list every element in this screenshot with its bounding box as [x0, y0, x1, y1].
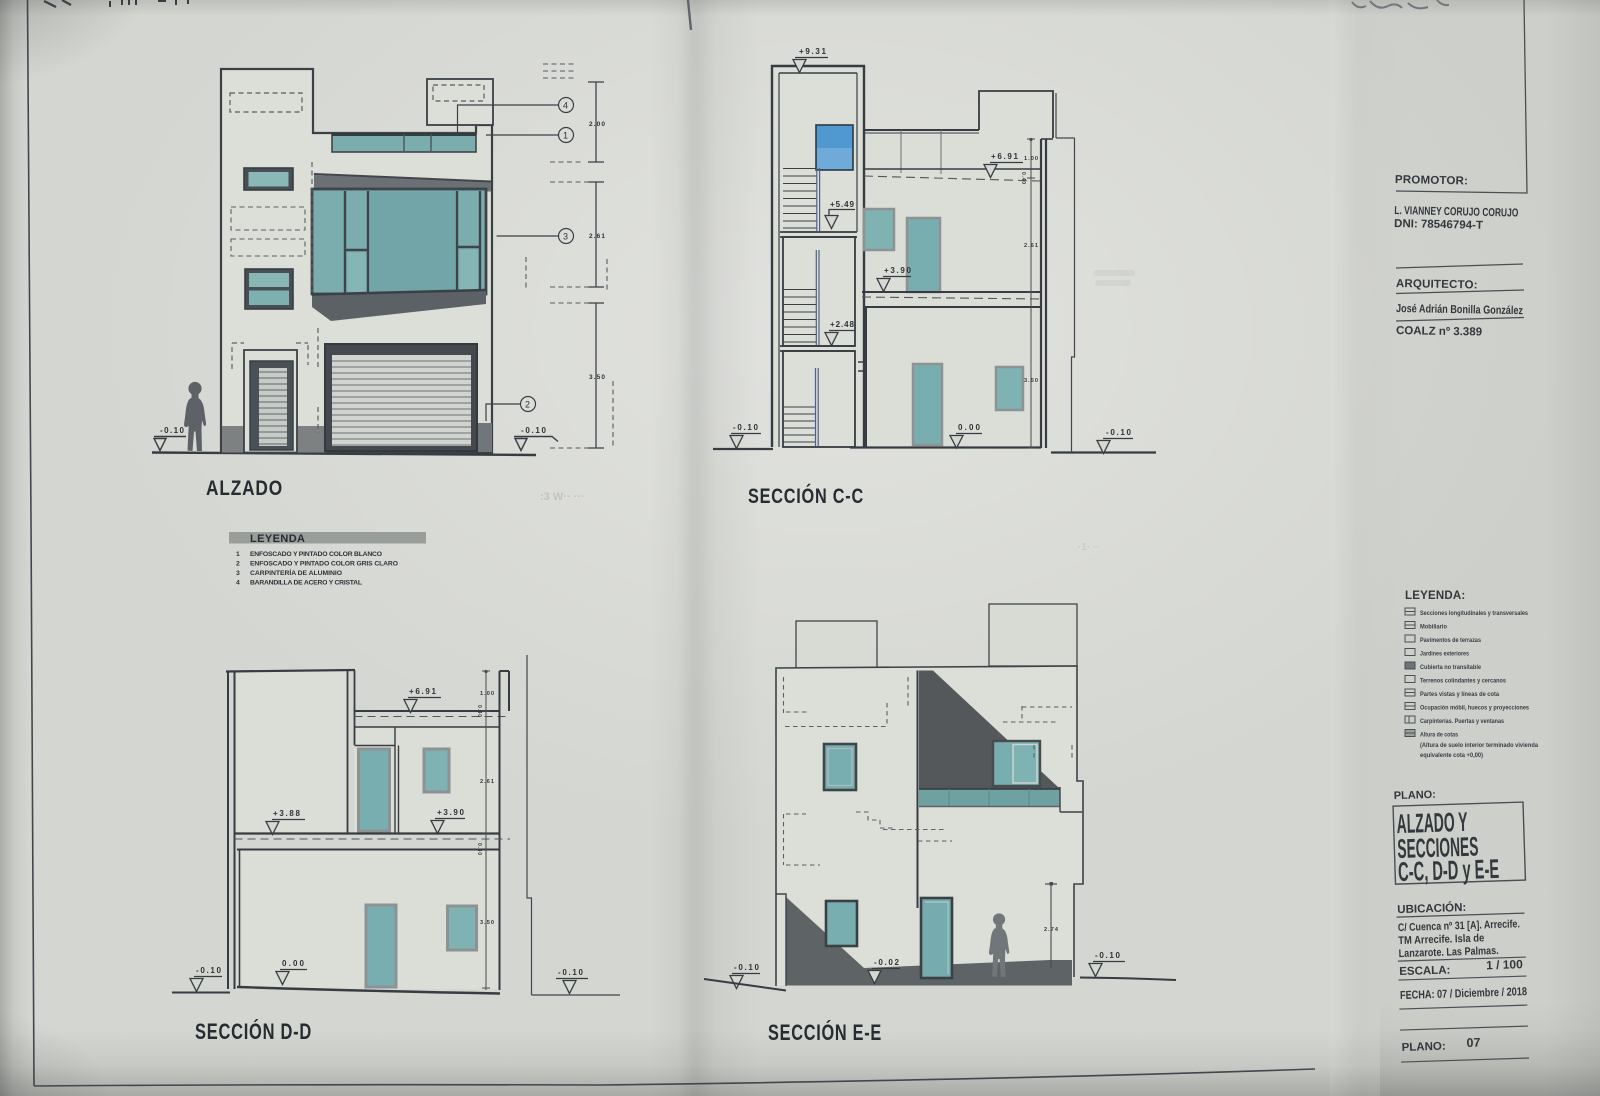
svg-text:0.40: 0.40: [476, 705, 482, 717]
svg-text:·1· ··: ·1· ··: [1078, 542, 1100, 553]
svg-text:3.50: 3.50: [480, 920, 494, 926]
svg-text:-0.10: -0.10: [521, 426, 547, 435]
svg-text:-0.10: -0.10: [734, 963, 760, 972]
svg-text:ARQUITECTO:: ARQUITECTO:: [1396, 278, 1478, 291]
svg-text:Altura de cotas: Altura de cotas: [1420, 732, 1458, 739]
svg-text:2.74: 2.74: [1044, 927, 1059, 933]
svg-text:(Altura de suelo interior term: (Altura de suelo interior terminado vivi…: [1420, 742, 1538, 749]
svg-text:2: 2: [525, 400, 530, 410]
svg-text:BARANDILLA DE ACERO Y CRISTAL: BARANDILLA DE ACERO Y CRISTAL: [250, 580, 362, 587]
svg-text:SECCIÓN D-D: SECCIÓN D-D: [195, 1019, 312, 1044]
svg-text:+3.90: +3.90: [884, 266, 912, 275]
svg-text:SECCIÓN E-E: SECCIÓN E-E: [768, 1020, 882, 1045]
svg-text:0.40: 0.40: [476, 843, 482, 855]
svg-text:-0.10: -0.10: [196, 966, 222, 975]
svg-text:4: 4: [236, 580, 240, 587]
svg-text:2.61: 2.61: [480, 779, 494, 785]
svg-text:PROMOTOR:: PROMOTOR:: [1395, 174, 1468, 188]
svg-text:Lanzarote. Las Palmas.: Lanzarote. Las Palmas.: [1399, 945, 1499, 960]
svg-text:ENFOSCADO Y PINTADO COLOR GRIS: ENFOSCADO Y PINTADO COLOR GRIS CLARO: [250, 561, 398, 568]
svg-text:FECHA: 07 / Diciembre / 2018: FECHA: 07 / Diciembre / 2018: [1400, 986, 1528, 1002]
svg-text:Terrenos colindantes y cercano: Terrenos colindantes y cercanos: [1420, 678, 1506, 685]
svg-text:+3.88: +3.88: [273, 809, 301, 818]
svg-text:Mobiliario: Mobiliario: [1420, 624, 1447, 631]
svg-text:1: 1: [563, 131, 568, 141]
svg-text:PLANO:: PLANO:: [1394, 789, 1437, 802]
svg-text:2.00: 2.00: [589, 121, 605, 128]
svg-text:C-C, D-D y E-E: C-C, D-D y E-E: [1398, 854, 1500, 887]
svg-text:2.61: 2.61: [589, 233, 605, 240]
svg-text:-0.10: -0.10: [733, 423, 759, 432]
svg-text:equivalente cota +0,00): equivalente cota +0,00): [1420, 752, 1483, 759]
svg-text:1.00: 1.00: [480, 691, 494, 697]
svg-text:Pavimentos de terrazas: Pavimentos de terrazas: [1420, 637, 1481, 644]
svg-text:+2.48: +2.48: [830, 320, 855, 329]
svg-text:ESCALA:: ESCALA:: [1399, 964, 1450, 978]
svg-text:0.00: 0.00: [282, 959, 305, 968]
svg-text:Carpinterías. Puertas y ventan: Carpinterías. Puertas y ventanas: [1420, 718, 1504, 725]
svg-text:+3.90: +3.90: [437, 808, 465, 817]
svg-text:ALZADO: ALZADO: [206, 477, 283, 500]
svg-text:07: 07: [1466, 1036, 1480, 1050]
svg-text:3: 3: [563, 232, 568, 242]
svg-text:+9.31: +9.31: [799, 47, 827, 56]
svg-text:0.00: 0.00: [958, 423, 981, 432]
svg-text:1: 1: [236, 551, 240, 558]
svg-text:Secciones longitudinales y tra: Secciones longitudinales y transversales: [1420, 610, 1528, 617]
svg-text:3: 3: [236, 570, 240, 577]
svg-text:3.50: 3.50: [589, 374, 605, 381]
svg-text:+6.91: +6.91: [991, 152, 1019, 161]
svg-text:LEYENDA:: LEYENDA:: [1405, 590, 1465, 602]
svg-text:-0.10: -0.10: [558, 968, 584, 977]
svg-text:Partes vistas y líneas de cota: Partes vistas y líneas de cota: [1420, 691, 1499, 698]
svg-text:COALZ nº 3.389: COALZ nº 3.389: [1396, 325, 1482, 338]
svg-text:SECCIÓN C-C: SECCIÓN C-C: [748, 484, 864, 508]
svg-text:-0.10: -0.10: [160, 426, 185, 435]
svg-text:+6.91: +6.91: [409, 687, 437, 696]
svg-text:1 / 100: 1 / 100: [1486, 957, 1523, 972]
svg-text:José Adrián Bonilla González: José Adrián Bonilla González: [1396, 303, 1523, 317]
svg-text:C/ Cuenca nº 31 [A]. Arrecife.: C/ Cuenca nº 31 [A]. Arrecife.: [1398, 918, 1520, 934]
svg-text:LEYENDA: LEYENDA: [250, 533, 305, 545]
svg-text:+5.49: +5.49: [830, 200, 855, 209]
svg-text:1.00: 1.00: [1024, 156, 1038, 162]
svg-text:PLANO:: PLANO:: [1401, 1041, 1445, 1054]
svg-text:Ocupación móbil, huecos y proy: Ocupación móbil, huecos y proyecciones: [1420, 705, 1529, 712]
svg-text:0.40: 0.40: [1020, 172, 1026, 184]
svg-text::3 W·· ···: :3 W·· ···: [540, 491, 585, 503]
svg-text:3.50: 3.50: [1024, 378, 1038, 384]
svg-text:Cubierta no transitable: Cubierta no transitable: [1420, 664, 1481, 671]
svg-text:CARPINTERÍA DE ALUMINIO: CARPINTERÍA DE ALUMINIO: [250, 568, 342, 577]
svg-text:Jardines exteriores: Jardines exteriores: [1420, 651, 1469, 658]
svg-text:2: 2: [236, 561, 240, 568]
svg-text:-0.10: -0.10: [1095, 951, 1121, 960]
svg-text:2.61: 2.61: [1024, 243, 1038, 249]
svg-text:-0.10: -0.10: [1106, 428, 1132, 437]
svg-text:ENFOSCADO Y PINTADO COLOR BLAN: ENFOSCADO Y PINTADO COLOR BLANCO: [250, 551, 382, 558]
svg-text:DNI: 78546794-T: DNI: 78546794-T: [1394, 218, 1483, 232]
svg-text:UBICACIÓN:: UBICACIÓN:: [1397, 901, 1466, 916]
svg-text:4: 4: [563, 101, 568, 111]
